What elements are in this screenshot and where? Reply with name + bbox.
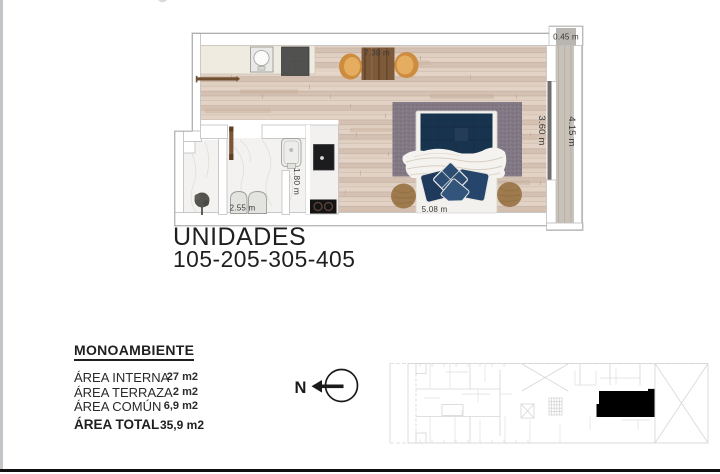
svg-text:5.08 m: 5.08 m <box>422 205 448 214</box>
svg-text:3.60 m: 3.60 m <box>536 115 547 145</box>
svg-text:0.45 m: 0.45 m <box>553 33 579 42</box>
svg-text:N: N <box>295 379 307 397</box>
svg-text:2.55 m: 2.55 m <box>230 204 256 213</box>
svg-text:4.15 m: 4.15 m <box>566 116 577 146</box>
svg-text:1.80 m: 1.80 m <box>292 168 302 195</box>
svg-text:7.38 m: 7.38 m <box>364 49 390 58</box>
